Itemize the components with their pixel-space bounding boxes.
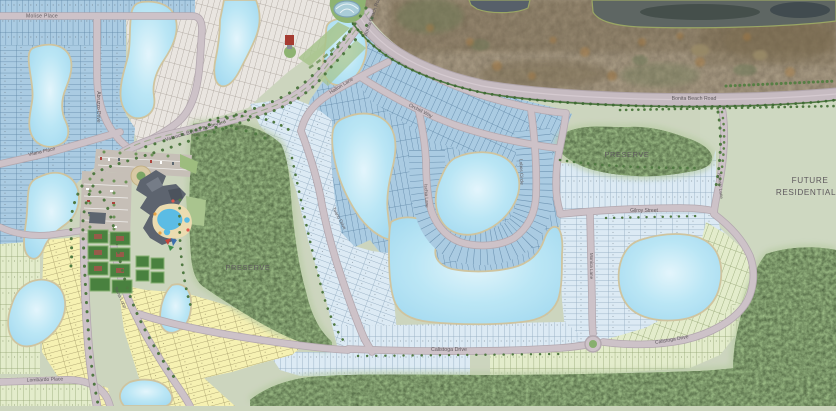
svg-text:PRESERVE: PRESERVE <box>226 263 271 272</box>
svg-text:Bonita Beach Road: Bonita Beach Road <box>672 96 717 102</box>
svg-text:Abruzzo Drive: Abruzzo Drive <box>95 91 101 123</box>
svg-text:RESIDENTIAL: RESIDENTIAL <box>776 188 836 197</box>
svg-text:Calistoga Drive: Calistoga Drive <box>431 347 467 353</box>
svg-text:Lombardo Place: Lombardo Place <box>27 376 64 383</box>
svg-text:PRESERVE: PRESERVE <box>605 150 650 159</box>
svg-text:FUTURE: FUTURE <box>792 176 829 185</box>
svg-text:Molise Place: Molise Place <box>26 14 58 20</box>
svg-text:Monica Lane: Monica Lane <box>589 253 594 280</box>
svg-text:Lobos Circle: Lobos Circle <box>519 159 525 185</box>
svg-text:Gilroy Street: Gilroy Street <box>630 208 658 214</box>
